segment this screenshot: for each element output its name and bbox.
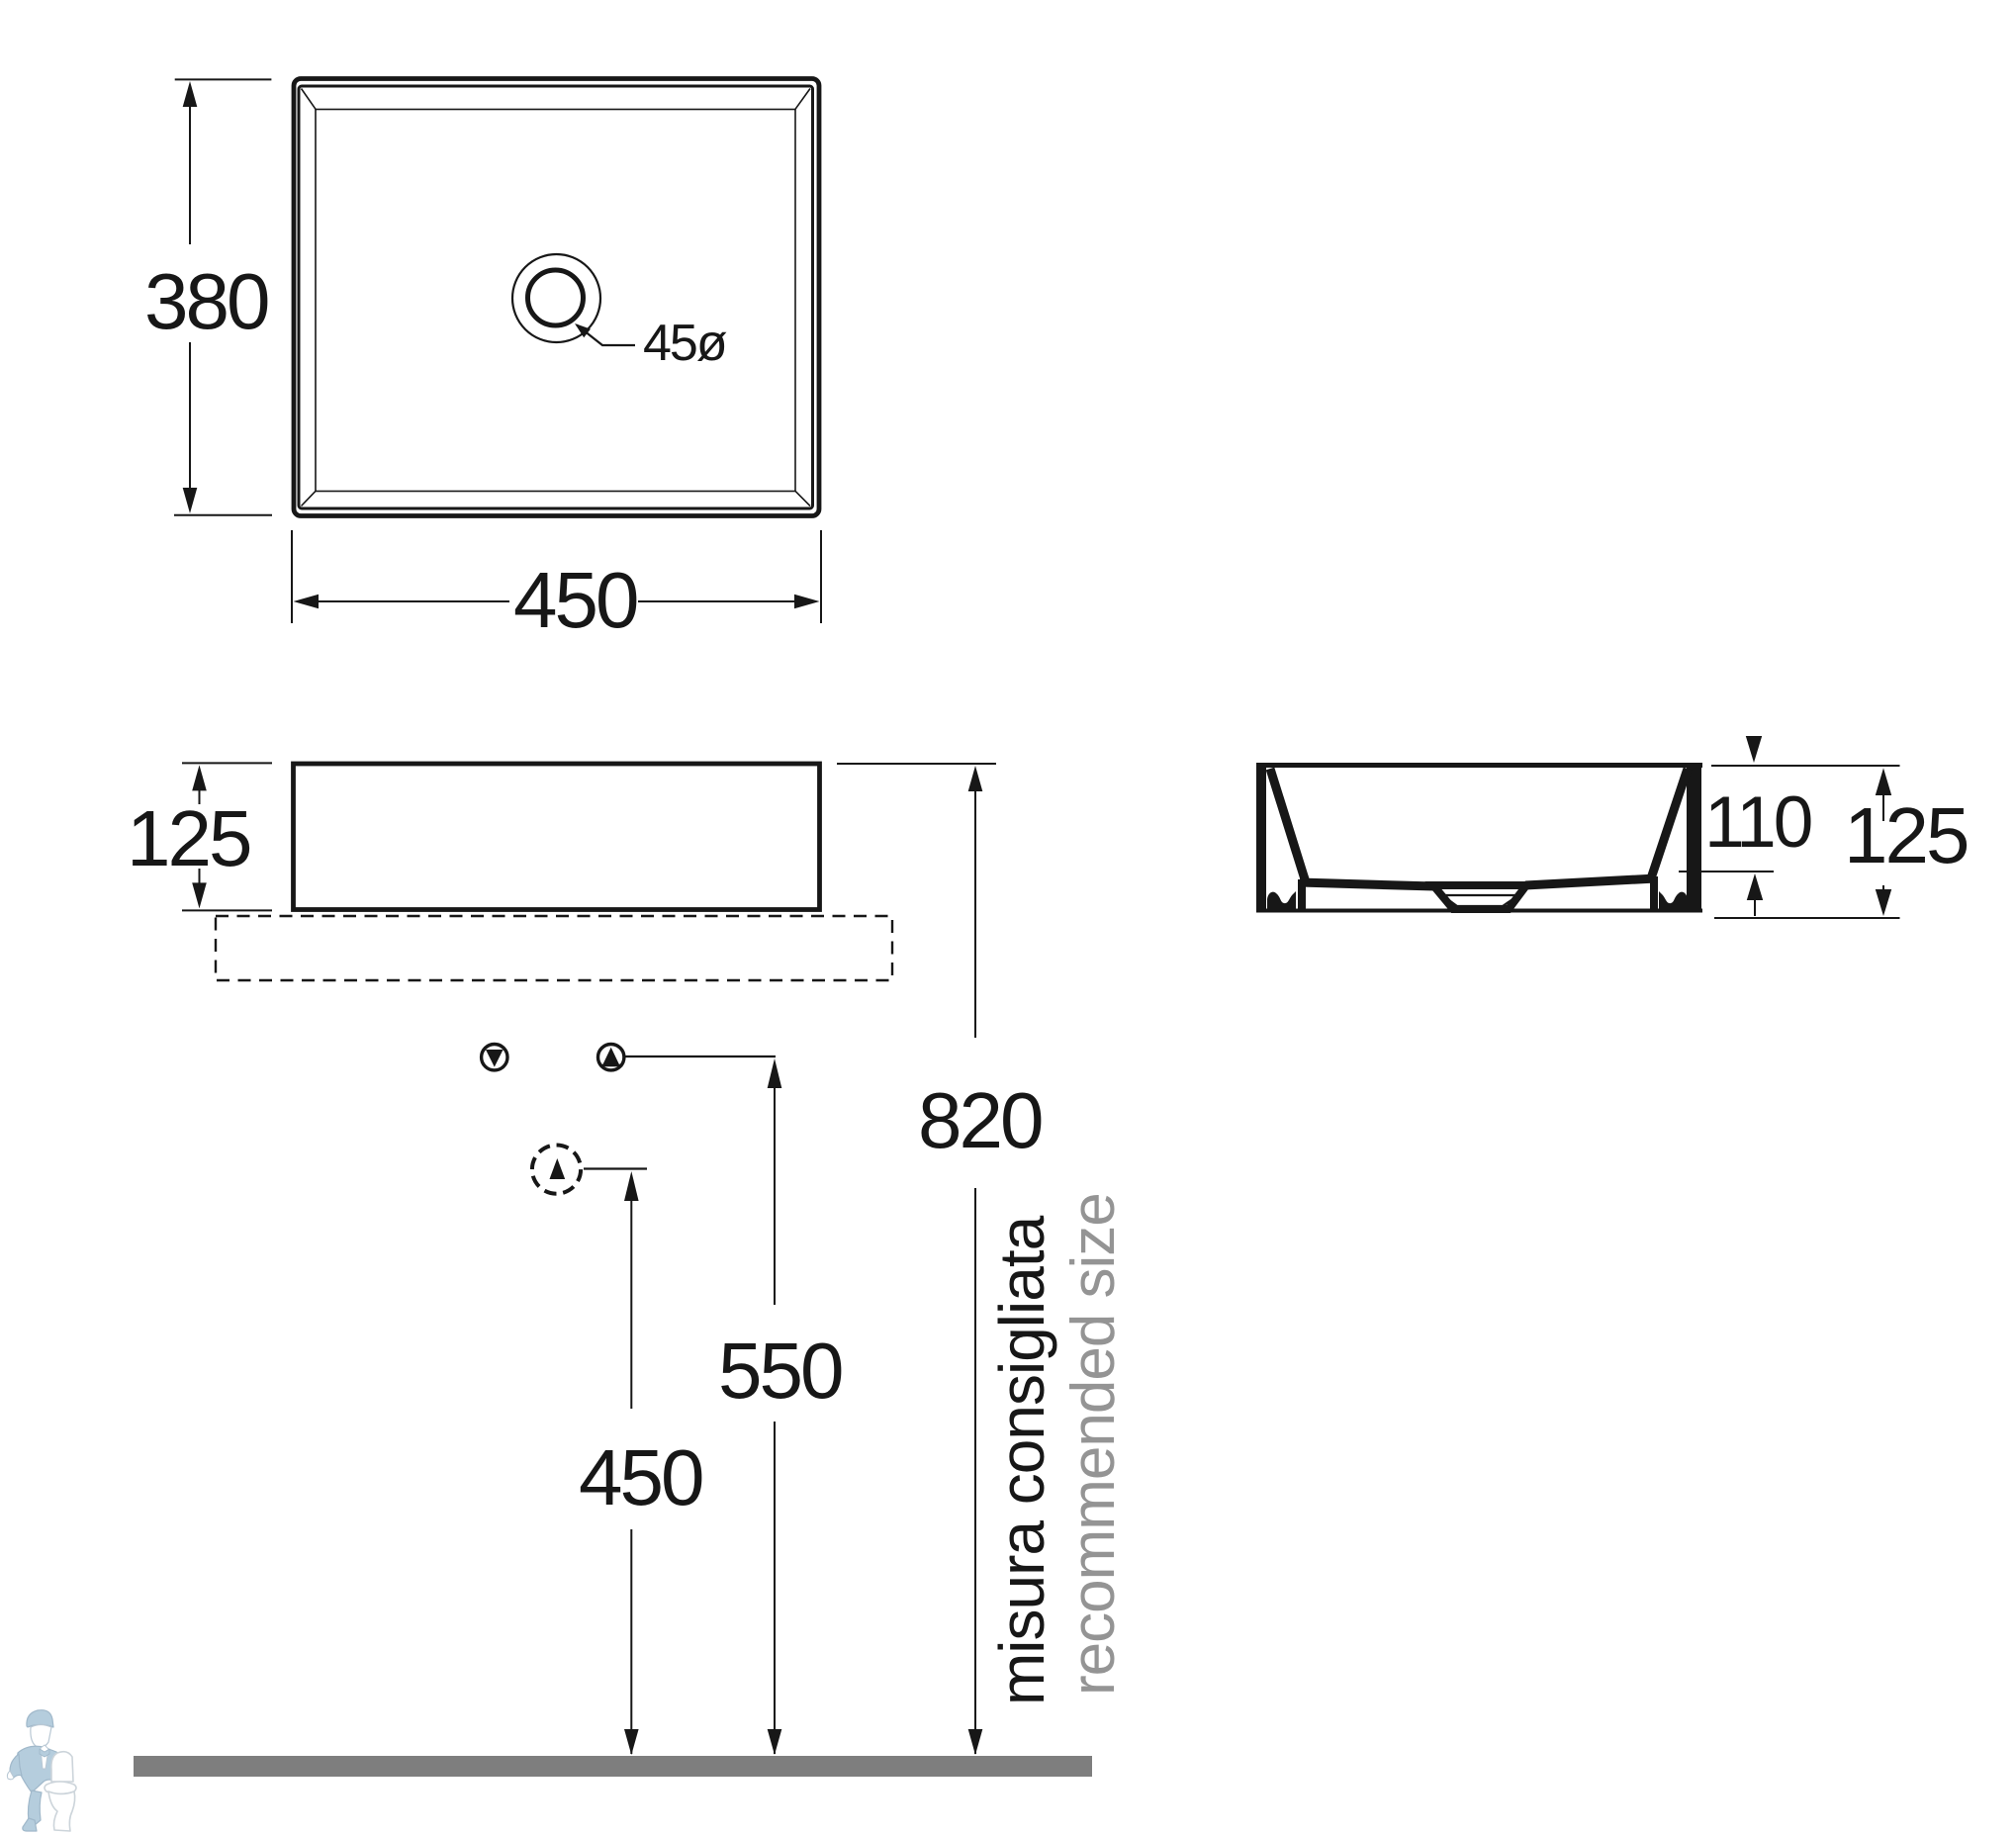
svg-text:misura consigliata: misura consigliata: [986, 1215, 1057, 1705]
svg-text:recommended size: recommended size: [1059, 1193, 1128, 1696]
svg-text:450: 450: [579, 1433, 702, 1521]
svg-text:110: 110: [1704, 782, 1811, 863]
svg-text:380: 380: [144, 257, 268, 345]
svg-text:450: 450: [513, 556, 637, 644]
svg-text:820: 820: [918, 1076, 1042, 1164]
svg-text:125: 125: [1844, 791, 1968, 879]
svg-text:45ø: 45ø: [643, 315, 727, 372]
svg-text:550: 550: [718, 1327, 842, 1415]
svg-text:125: 125: [127, 794, 250, 882]
